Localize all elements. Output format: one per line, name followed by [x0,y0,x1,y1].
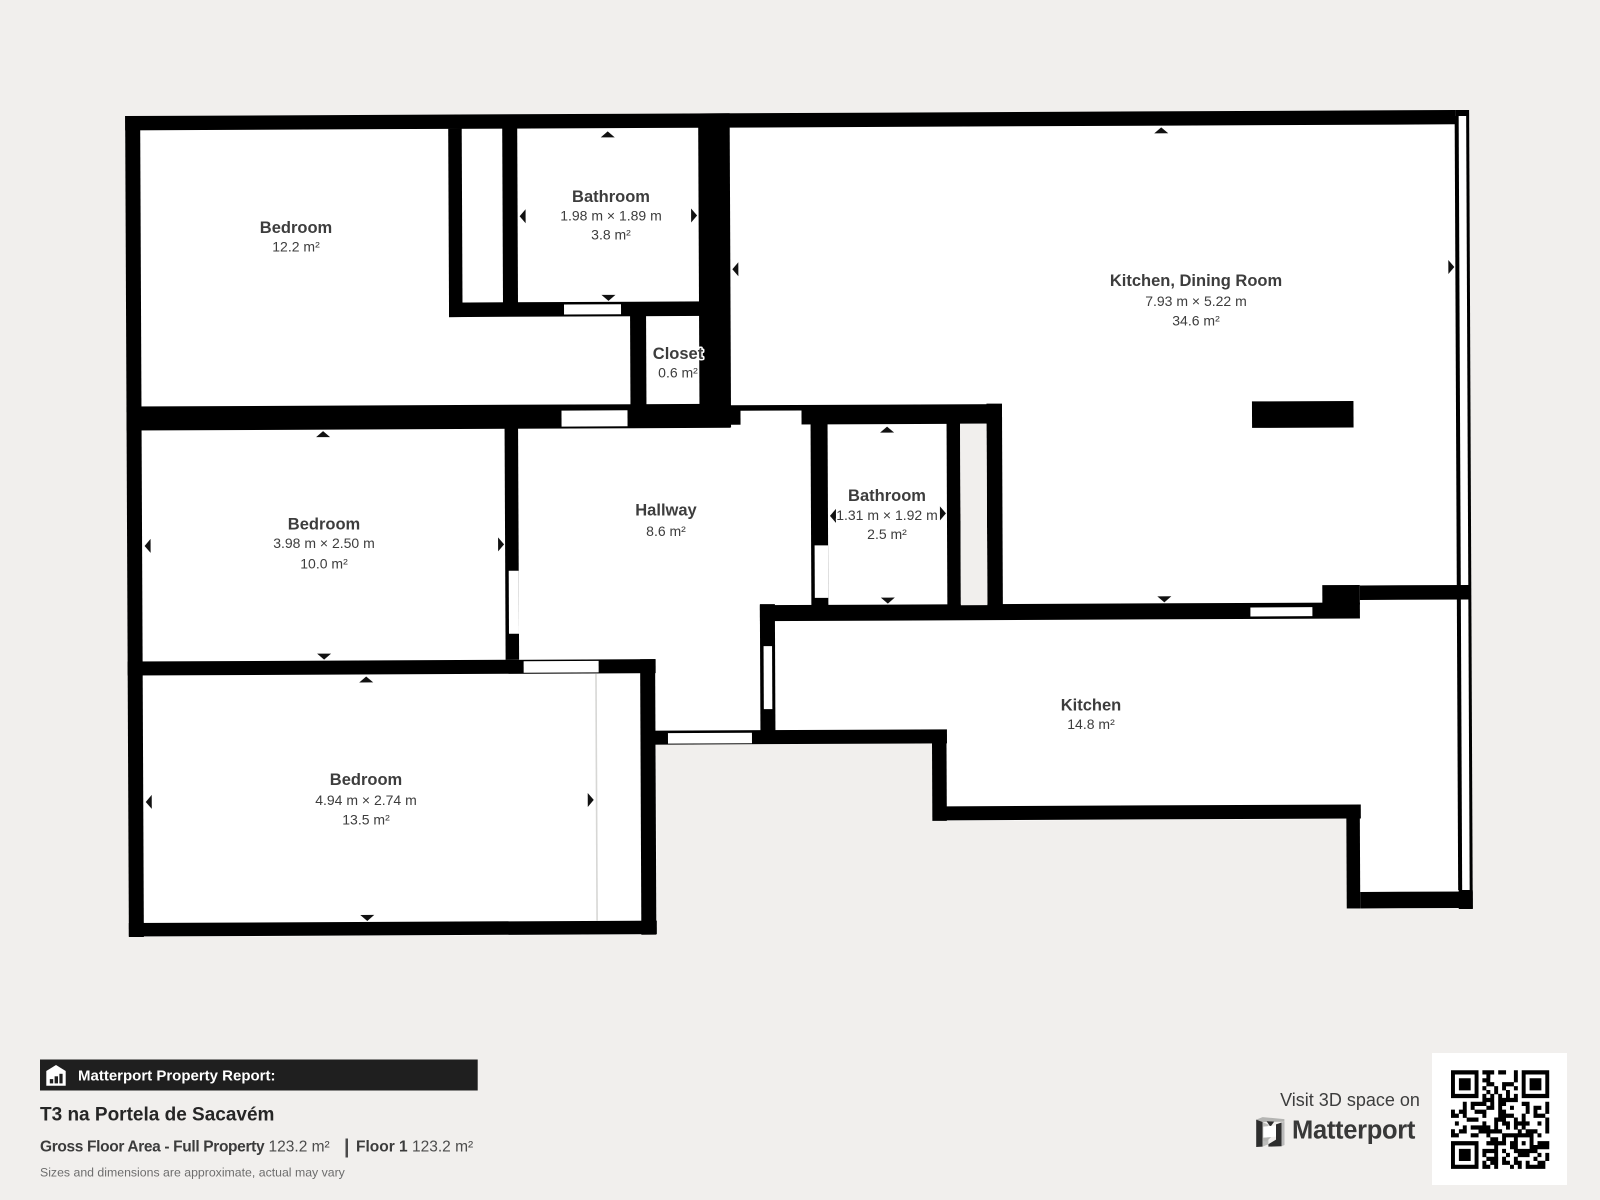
svg-text:Sizes and dimensions are appro: Sizes and dimensions are approximate, ac… [40,1166,346,1180]
svg-text:Floor 1 123.2 m²: Floor 1 123.2 m² [356,1139,473,1156]
svg-text:7.93 m × 5.22 m: 7.93 m × 5.22 m [1145,293,1247,309]
svg-text:Visit 3D space on: Visit 3D space on [1280,1090,1420,1110]
svg-text:Gross Floor Area - Full Proper: Gross Floor Area - Full Property 123.2 m… [40,1139,330,1156]
svg-text:T3 na Portela de Sacavém: T3 na Portela de Sacavém [40,1105,274,1126]
svg-text:8.6 m²: 8.6 m² [646,523,686,539]
svg-text:Matterport: Matterport [1292,1117,1416,1145]
svg-text:4.94 m × 2.74 m: 4.94 m × 2.74 m [315,792,417,808]
svg-text:Kitchen: Kitchen [1061,696,1122,714]
svg-text:14.8 m²: 14.8 m² [1067,716,1115,732]
svg-text:Kitchen, Dining Room: Kitchen, Dining Room [1110,272,1282,290]
svg-text:Closet: Closet [653,345,704,363]
svg-text:Bedroom: Bedroom [288,515,360,533]
svg-text:Bedroom: Bedroom [330,771,402,789]
svg-text:Bathroom: Bathroom [572,188,650,206]
svg-text:10.0 m²: 10.0 m² [300,555,348,571]
svg-text:1.31 m × 1.92 m: 1.31 m × 1.92 m [836,507,938,523]
svg-text:Hallway: Hallway [635,501,697,519]
svg-text:Bathroom: Bathroom [848,487,926,505]
svg-text:1.98 m × 1.89 m: 1.98 m × 1.89 m [560,207,662,223]
svg-text:2.5 m²: 2.5 m² [867,526,907,542]
svg-text:Bedroom: Bedroom [260,219,332,237]
svg-text:3.98 m × 2.50 m: 3.98 m × 2.50 m [273,535,375,551]
svg-text:0.6 m²: 0.6 m² [658,364,698,380]
svg-text:13.5 m²: 13.5 m² [342,811,390,827]
svg-text:34.6 m²: 34.6 m² [1172,312,1220,328]
svg-text:Matterport Property Report:: Matterport Property Report: [78,1068,276,1085]
svg-text:12.2 m²: 12.2 m² [272,238,320,254]
svg-text:3.8 m²: 3.8 m² [591,226,631,242]
